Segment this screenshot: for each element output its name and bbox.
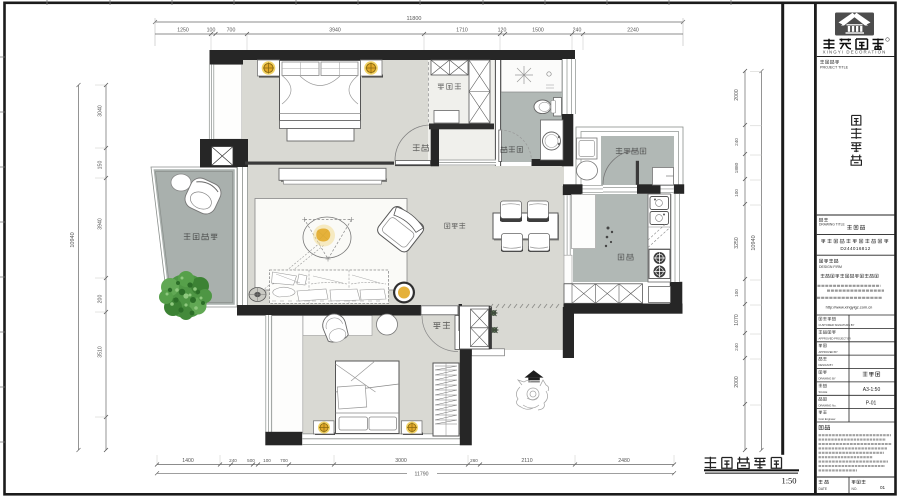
svg-text:200: 200 (98, 295, 104, 304)
svg-text:240: 240 (734, 343, 739, 351)
svg-text:DATE: DATE (819, 487, 828, 491)
svg-text:260: 260 (470, 458, 478, 463)
svg-text:700: 700 (227, 28, 236, 34)
svg-text:11800: 11800 (407, 16, 422, 22)
svg-text:3000: 3000 (395, 458, 407, 464)
svg-text:SCALE: SCALE (819, 390, 828, 394)
svg-text:3040: 3040 (98, 105, 104, 117)
svg-text:01: 01 (880, 485, 886, 490)
svg-text:240: 240 (573, 28, 582, 34)
svg-text:CUSTOMER SIGNATURE BY: CUSTOMER SIGNATURE BY (819, 323, 855, 327)
svg-text:100: 100 (263, 458, 271, 463)
svg-text:Cost Engineer: Cost Engineer (819, 417, 836, 421)
svg-text:DRAWING TITLE: DRAWING TITLE (819, 223, 845, 227)
svg-text:http://www.xingyigz.com.cn: http://www.xingyigz.com.cn (826, 305, 873, 310)
svg-text:3250: 3250 (734, 237, 740, 249)
svg-text:D244016812: D244016812 (840, 246, 870, 251)
svg-text:120: 120 (498, 28, 507, 34)
svg-text:10940: 10940 (751, 235, 757, 250)
svg-text:3510: 3510 (98, 346, 104, 358)
svg-text:APPROVED BY: APPROVED BY (819, 350, 838, 354)
svg-text:1400: 1400 (182, 458, 194, 464)
svg-text:PROJECT TITLE: PROJECT TITLE (820, 66, 849, 70)
svg-text:11790: 11790 (414, 471, 428, 477)
svg-text:100: 100 (207, 28, 216, 34)
svg-text:XINGYI DECORATION: XINGYI DECORATION (823, 50, 887, 55)
svg-text:100: 100 (734, 289, 739, 297)
svg-text:DRAWING BY: DRAWING BY (819, 377, 836, 381)
svg-text:3940: 3940 (329, 28, 341, 34)
svg-text:2480: 2480 (618, 458, 630, 464)
svg-text:1500: 1500 (532, 28, 544, 34)
svg-text:1250: 1250 (177, 28, 189, 34)
svg-text:2240: 2240 (627, 28, 639, 34)
svg-text:A3-1:50: A3-1:50 (863, 387, 881, 393)
svg-text:DRAWING No.: DRAWING No. (819, 403, 837, 407)
svg-text:NO.: NO. (852, 487, 858, 491)
svg-text:10940: 10940 (70, 232, 76, 247)
svg-text:2110: 2110 (521, 458, 532, 464)
svg-text:1070: 1070 (734, 314, 740, 326)
svg-text:240: 240 (229, 458, 237, 463)
svg-text:100: 100 (734, 189, 739, 197)
svg-text:2000: 2000 (734, 376, 740, 388)
svg-text:P-01: P-01 (866, 400, 877, 406)
svg-text:1880: 1880 (734, 162, 740, 173)
svg-text:DESIGN BY: DESIGN BY (819, 363, 834, 367)
svg-text:240: 240 (734, 138, 739, 146)
svg-text:700: 700 (280, 458, 288, 463)
svg-text:500: 500 (247, 458, 255, 463)
svg-text:2000: 2000 (734, 89, 740, 101)
svg-text:1710: 1710 (456, 28, 468, 34)
svg-text:1:50: 1:50 (781, 476, 796, 486)
svg-text:APPROVED PROJECT BY: APPROVED PROJECT BY (819, 336, 852, 340)
svg-text:150: 150 (98, 161, 104, 170)
svg-text:DESIGN FIRM: DESIGN FIRM (819, 265, 842, 269)
svg-text:3940: 3940 (98, 218, 104, 230)
